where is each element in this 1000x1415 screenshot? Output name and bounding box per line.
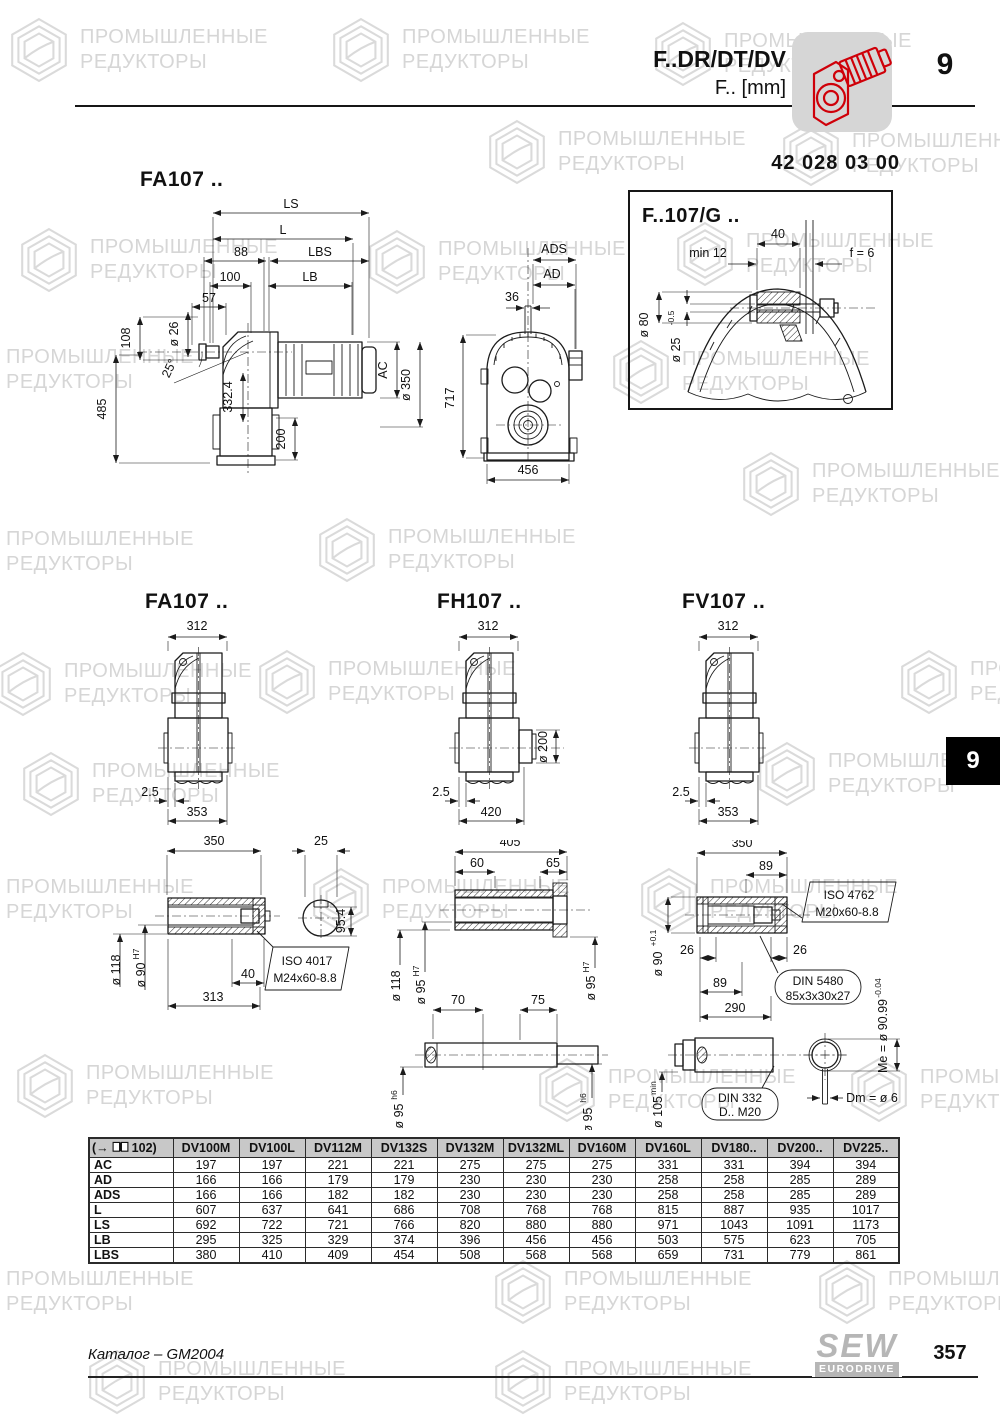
table-cell: 275 xyxy=(437,1158,503,1173)
row-label: ADS xyxy=(89,1188,173,1203)
watermark-text-line: РЕДУКТОРЫ xyxy=(86,1086,274,1111)
dim-88: 88 xyxy=(234,245,248,259)
table-cell: 230 xyxy=(503,1188,569,1203)
dim-ad: AD xyxy=(543,267,560,281)
catalog-page: ПРОМЫШЛЕННЫЕРЕДУКТОРЫ ПРОМЫШЛЕННЫЕРЕДУКТ… xyxy=(0,0,1000,1415)
dim-2-5: 2.5 xyxy=(672,785,689,799)
fv107-small-view-drawing: 312 2.5 353 xyxy=(664,617,784,832)
ref-page: 102) xyxy=(132,1141,157,1155)
table-cell: 1043 xyxy=(701,1218,767,1233)
dim-o90: ø 90 xyxy=(651,951,665,976)
watermark: ПРОМЫШЛЕННЫЕРЕДУКТОРЫ xyxy=(0,518,194,586)
table-row: LBS380410409454508568568659731779861 xyxy=(89,1248,899,1264)
table-cell: 768 xyxy=(503,1203,569,1218)
watermark: ПРОМЫШЛЕННЫЕРЕДУКТОРЫ xyxy=(740,450,1000,518)
dim-o95-right: ø 95 xyxy=(584,975,598,1000)
watermark-hexagon-icon xyxy=(330,16,392,84)
table-cell: 659 xyxy=(635,1248,701,1264)
table-cell: 686 xyxy=(371,1203,437,1218)
table-cell: 258 xyxy=(635,1188,701,1203)
table-cell: 861 xyxy=(833,1248,899,1264)
sew-eurodrive-logo: SEW EURODRIVE xyxy=(812,1330,902,1377)
table-cell: 623 xyxy=(767,1233,833,1248)
table-cell: 329 xyxy=(305,1233,371,1248)
dim-o95-left: ø 95 xyxy=(414,979,428,1004)
table-cell: 275 xyxy=(569,1158,635,1173)
dim-lbs: LBS xyxy=(308,245,332,259)
watermark-text-line: РЕДУКТОРЫ xyxy=(80,50,268,75)
fa107-side-view-drawing: LS L 88 LBS 100 LB 57 108 ø 26 25° 485 3… xyxy=(80,195,440,525)
table-cell: 285 xyxy=(767,1188,833,1203)
table-cell: 503 xyxy=(635,1233,701,1248)
table-cell: 815 xyxy=(635,1203,701,1218)
table-header-cell: DV132ML xyxy=(503,1138,569,1158)
table-header-cell: DV160M xyxy=(569,1138,635,1158)
table-cell: 166 xyxy=(173,1173,239,1188)
watermark-text-line: ПРОМЫШЛЕННЫЕ xyxy=(80,25,268,50)
table-cell: 179 xyxy=(371,1173,437,1188)
watermark-text-line: ПРОМЫШЛЕННЫЕ xyxy=(564,1357,752,1382)
table-cell: 409 xyxy=(305,1248,371,1264)
dim-70: 70 xyxy=(451,993,465,1007)
watermark-text-line: ПРОМЫШЛЕННЫЕ xyxy=(6,527,194,552)
dim-420: 420 xyxy=(481,805,502,819)
watermark: ПРОМЫШЛЕННЫЕРЕДУКТОРЫ xyxy=(492,1258,752,1326)
watermark-hexagon-icon xyxy=(18,226,80,294)
inset-title: F..107/G .. xyxy=(642,205,740,227)
table-ref-cell: (→102) xyxy=(89,1138,173,1158)
dim-o25: ø 25 xyxy=(669,337,683,362)
dim-l: L xyxy=(280,223,287,237)
header-unit: F.. [mm] xyxy=(560,77,786,100)
table-cell: 374 xyxy=(371,1233,437,1248)
table-cell: 692 xyxy=(173,1218,239,1233)
table-row: AD166166179179230230230258258285289 xyxy=(89,1173,899,1188)
fa-hollow-shaft-drawing: 350 25 95.4 ø 118 ø 90 H7 40 313 ISO 401… xyxy=(95,835,375,1030)
table-cell: 331 xyxy=(635,1158,701,1173)
table-cell: 575 xyxy=(701,1233,767,1248)
table-cell: 221 xyxy=(371,1158,437,1173)
dim-me-tolerance: -0.04 xyxy=(873,978,883,998)
drawing-title-fa107: FA107 .. xyxy=(145,590,228,614)
dimension-table: (→102) DV100M DV100L DV112M DV132S DV132… xyxy=(88,1137,900,1264)
table-header-cell: DV225.. xyxy=(833,1138,899,1158)
chapter-side-tab: 9 xyxy=(946,737,1000,785)
catalog-book-icon xyxy=(112,1141,129,1153)
dim-332: 332.4 xyxy=(221,381,235,412)
table-header-cell: DV112M xyxy=(305,1138,371,1158)
watermark-text-line: ПРОМЫШЛЕННЫЕ xyxy=(970,657,1000,682)
dim-485: 485 xyxy=(95,399,109,420)
watermark: ПРОМЫШЛЕННЫЕРЕДУКТОРЫ xyxy=(14,1052,274,1120)
table-cell: 454 xyxy=(371,1248,437,1264)
watermark-text-line: ПРОМЫШЛЕННЫЕ xyxy=(888,1267,1000,1292)
table-cell: 258 xyxy=(701,1173,767,1188)
gearmotor-icon xyxy=(792,32,892,132)
table-cell: 179 xyxy=(305,1173,371,1188)
table-cell: 331 xyxy=(701,1158,767,1173)
dim-405: 405 xyxy=(500,840,521,849)
logo-sew-text: SEW xyxy=(815,1330,899,1362)
dim-36: 36 xyxy=(505,290,519,304)
watermark-hexagon-icon xyxy=(14,1052,76,1120)
row-label: LBS xyxy=(89,1248,173,1264)
dim-o95-left-fit: H7 xyxy=(411,965,421,976)
watermark-text-line: РЕДУКТОРЫ xyxy=(888,1292,1000,1317)
table-cell: 166 xyxy=(239,1173,305,1188)
callout-din5480: DIN 5480 xyxy=(793,974,844,988)
watermark-text-line: РЕДУКТОРЫ xyxy=(564,1292,752,1317)
dim-717: 717 xyxy=(443,388,457,409)
table-cell: 289 xyxy=(833,1188,899,1203)
table-cell: 1091 xyxy=(767,1218,833,1233)
dim-o200: ø 200 xyxy=(536,731,550,763)
f107g-inset-drawing: F..107/G .. 40 min 12 f = 6 ø xyxy=(630,192,891,408)
watermark-hexagon-icon xyxy=(492,1258,554,1326)
dim-312: 312 xyxy=(478,619,499,633)
table-row: L6076376416867087687688158879351017 xyxy=(89,1203,899,1218)
table-cell: 221 xyxy=(305,1158,371,1173)
watermark-text-line: РЕДУКТОРЫ xyxy=(970,682,1000,707)
dim-350: 350 xyxy=(732,840,753,850)
dim-312: 312 xyxy=(187,619,208,633)
table-cell: 508 xyxy=(437,1248,503,1264)
table-cell: 637 xyxy=(239,1203,305,1218)
table-cell: 641 xyxy=(305,1203,371,1218)
table-cell: 258 xyxy=(635,1173,701,1188)
watermark-hexagon-icon xyxy=(898,648,960,716)
watermark-hexagon-icon xyxy=(316,516,378,584)
watermark-hexagon-icon xyxy=(486,118,548,186)
watermark-hexagon-icon xyxy=(816,1258,878,1326)
dim-40: 40 xyxy=(241,967,255,981)
table-cell: 779 xyxy=(767,1248,833,1264)
watermark-text-line: ПРОМЫШЛЕННЫЕ xyxy=(6,1267,194,1292)
dim-ls: LS xyxy=(283,197,298,211)
table-cell: 731 xyxy=(701,1248,767,1264)
table-row: ADS166166182182230230230258258285289 xyxy=(89,1188,899,1203)
table-header-cell: DV132M xyxy=(437,1138,503,1158)
table-header-cell: DV100M xyxy=(173,1138,239,1158)
watermark-text-line: РЕДУКТОРЫ xyxy=(388,550,576,575)
table-cell: 935 xyxy=(767,1203,833,1218)
watermark-text-line: ПРОМЫШЛЕННЫЕ xyxy=(564,1267,752,1292)
table-row: LB295325329374396456456503575623705 xyxy=(89,1233,899,1248)
watermark-text-line: РЕДУКТОРЫ xyxy=(6,552,194,577)
dim-o80: ø 80 xyxy=(637,312,651,337)
table-row: AC197197221221275275275331331394394 xyxy=(89,1158,899,1173)
fh107-small-view-drawing: 312 ø 200 2.5 420 xyxy=(424,617,584,832)
fh-shaft-drawing: 405 60 65 ø 118 ø 95 H7 ø 95 H7 70 75 ø … xyxy=(390,840,660,1130)
table-cell: 380 xyxy=(173,1248,239,1264)
table-header-cell: DV160L xyxy=(635,1138,701,1158)
watermark-hexagon-icon xyxy=(492,1348,554,1415)
dim-290: 290 xyxy=(725,1001,746,1015)
table-cell: 325 xyxy=(239,1233,305,1248)
dim-65: 65 xyxy=(546,856,560,870)
table-cell: 768 xyxy=(569,1203,635,1218)
table-cell: 880 xyxy=(503,1218,569,1233)
table-cell: 197 xyxy=(173,1158,239,1173)
table-cell: 705 xyxy=(833,1233,899,1248)
chapter-number: 9 xyxy=(920,48,970,82)
callout-m24: M24x60-8.8 xyxy=(273,971,337,985)
fa107-small-view-drawing: 312 2.5 353 xyxy=(133,617,253,832)
dim-60: 60 xyxy=(470,856,484,870)
watermark-text-line: РЕДУКТОРЫ xyxy=(564,1382,752,1407)
dim-o118: ø 118 xyxy=(390,970,403,1001)
dim-o350: ø 350 xyxy=(399,369,413,401)
table-cell: 230 xyxy=(437,1173,503,1188)
callout-iso4762: ISO 4762 xyxy=(824,888,875,902)
callout-d-m20: D.. M20 xyxy=(719,1105,761,1119)
table-cell: 971 xyxy=(635,1218,701,1233)
dim-lb: LB xyxy=(302,270,317,284)
dim-min12: min 12 xyxy=(689,246,727,260)
dim-312: 312 xyxy=(718,619,739,633)
watermark-text-line: РЕДУКТОРЫ xyxy=(6,1292,194,1317)
dim-108: 108 xyxy=(119,328,133,349)
watermark: ПРОМЫШЛЕННЫЕРЕДУКТОРЫ xyxy=(898,648,1000,716)
dim-dm: Dm = ø 6 xyxy=(846,1091,898,1105)
footer-catalog-name: Каталог – GM2004 xyxy=(88,1346,224,1363)
table-header-cell: DV132S xyxy=(371,1138,437,1158)
table-header-cell: DV100L xyxy=(239,1138,305,1158)
dim-o95-bottom-left-fit: h6 xyxy=(390,1090,399,1100)
dim-o105-min: min xyxy=(650,1081,658,1095)
drawing-title-fa107-main: FA107 .. xyxy=(140,168,223,192)
dim-ac: AC xyxy=(376,361,390,378)
watermark-hexagon-icon xyxy=(256,648,318,716)
logo-eurodrive-text: EURODRIVE xyxy=(815,1362,899,1377)
watermark: ПРОМЫШЛЕННЫЕРЕДУКТОРЫ xyxy=(0,1258,194,1326)
dim-o95-bottom-right: ø 95 xyxy=(581,1107,595,1130)
dim-o90: ø 90 xyxy=(134,962,148,987)
table-cell: 1017 xyxy=(833,1203,899,1218)
dim-57: 57 xyxy=(202,291,216,305)
row-label: AC xyxy=(89,1158,173,1173)
dim-350: 350 xyxy=(204,835,225,848)
table-cell: 258 xyxy=(701,1188,767,1203)
header-model: F..DR/DT/DV xyxy=(560,46,786,73)
watermark-text-line: ПРОМЫШЛЕННЫЕ xyxy=(86,1061,274,1086)
table-cell: 456 xyxy=(569,1233,635,1248)
dim-o25-tolerance: -0.5 xyxy=(666,310,676,325)
table-cell: 275 xyxy=(503,1158,569,1173)
watermark: ПРОМЫШЛЕННЫЕРЕДУКТОРЫ xyxy=(8,16,268,84)
row-label: LS xyxy=(89,1218,173,1233)
dim-f6: f = 6 xyxy=(850,246,875,260)
table-header-cell: DV200.. xyxy=(767,1138,833,1158)
table-cell: 766 xyxy=(371,1218,437,1233)
table-cell: 410 xyxy=(239,1248,305,1264)
dim-o90-tolerance: +0.1 xyxy=(650,929,658,946)
header-icon-box xyxy=(792,32,892,132)
watermark-hexagon-icon xyxy=(20,750,82,818)
watermark-text-line: ПРОМЫШЛЕННЫЕ xyxy=(558,127,746,152)
table-cell: 289 xyxy=(833,1173,899,1188)
dim-26-right: 26 xyxy=(793,943,807,957)
table-cell: 166 xyxy=(173,1188,239,1203)
dim-o90-fit: H7 xyxy=(131,948,141,959)
header: F..DR/DT/DV F.. [mm] xyxy=(560,46,786,100)
dim-313: 313 xyxy=(203,990,224,1004)
dim-o95-right-fit: H7 xyxy=(581,961,591,972)
watermark-text-line: ПРОМЫШЛЕННЫЕ xyxy=(852,129,1000,154)
table-cell: 820 xyxy=(437,1218,503,1233)
watermark-text-line: ПРОМЫШЛЕННЫЕ xyxy=(388,525,576,550)
dim-353: 353 xyxy=(187,805,208,819)
watermark-text-line: РЕДУКТОРЫ xyxy=(812,484,1000,509)
dim-o105: ø 105 xyxy=(651,1096,665,1128)
table-cell: 230 xyxy=(569,1173,635,1188)
watermark: ПРОМЫШЛЕННЫЕРЕДУКТОРЫ xyxy=(330,16,590,84)
dim-o26: ø 26 xyxy=(167,321,181,346)
table-cell: 722 xyxy=(239,1218,305,1233)
dim-100: 100 xyxy=(220,270,241,284)
watermark-hexagon-icon xyxy=(740,450,802,518)
table-cell: 396 xyxy=(437,1233,503,1248)
table-cell: 880 xyxy=(569,1218,635,1233)
dim-25: 25 xyxy=(314,835,328,848)
table-cell: 182 xyxy=(305,1188,371,1203)
dim-26-left: 26 xyxy=(680,943,694,957)
watermark: ПРОМЫШЛЕННЫЕРЕДУКТОРЫ xyxy=(316,516,576,584)
table-header-row: (→102) DV100M DV100L DV112M DV132S DV132… xyxy=(89,1138,899,1158)
page-number: 357 xyxy=(922,1342,978,1365)
table-cell: 394 xyxy=(767,1158,833,1173)
watermark-text-line: РЕДУКТОРЫ xyxy=(158,1382,346,1407)
table-header-cell: DV180.. xyxy=(701,1138,767,1158)
dim-o95-bottom-left: ø 95 xyxy=(392,1103,406,1128)
dim-40: 40 xyxy=(771,227,785,241)
dim-75: 75 xyxy=(531,993,545,1007)
dim-89-top: 89 xyxy=(759,859,773,873)
callout-din332: DIN 332 xyxy=(718,1091,762,1105)
fa107-front-view-drawing: ADS AD 36 717 456 xyxy=(440,228,640,518)
table-cell: 708 xyxy=(437,1203,503,1218)
dim-ads: ADS xyxy=(541,242,567,256)
table-cell: 394 xyxy=(833,1158,899,1173)
dim-o95-bottom-right-fit: h6 xyxy=(578,1093,588,1103)
dim-me: Me = ø 90.99 xyxy=(876,999,890,1073)
row-label: L xyxy=(89,1203,173,1218)
dim-456: 456 xyxy=(518,463,539,477)
table-cell: 568 xyxy=(503,1248,569,1264)
dim-95-4: 95.4 xyxy=(334,909,348,933)
dim-200: 200 xyxy=(274,429,288,450)
table-cell: 182 xyxy=(371,1188,437,1203)
callout-iso4017: ISO 4017 xyxy=(282,954,333,968)
inset-box: F..107/G .. 40 min 12 f = 6 ø xyxy=(628,190,893,410)
dim-2-5: 2.5 xyxy=(432,785,449,799)
table-cell: 721 xyxy=(305,1218,371,1233)
dim-353: 353 xyxy=(718,805,739,819)
table-cell: 1173 xyxy=(833,1218,899,1233)
fv-splined-shaft-drawing: 350 89 ISO 4762 M20x60-8.8 26 26 89 290 … xyxy=(650,840,995,1140)
table-cell: 456 xyxy=(503,1233,569,1248)
drawing-title-fv107: FV107 .. xyxy=(682,590,765,614)
table-cell: 230 xyxy=(503,1173,569,1188)
table-cell: 230 xyxy=(437,1188,503,1203)
table-cell: 230 xyxy=(569,1188,635,1203)
row-label: AD xyxy=(89,1173,173,1188)
watermark: ПРОМЫШЛЕННЫЕРЕДУКТОРЫ xyxy=(816,1258,1000,1326)
dim-89-bottom: 89 xyxy=(713,976,727,990)
table-cell: 295 xyxy=(173,1233,239,1248)
dim-2-5: 2.5 xyxy=(141,785,158,799)
watermark-hexagon-icon xyxy=(8,16,70,84)
table-cell: 887 xyxy=(701,1203,767,1218)
table-cell: 285 xyxy=(767,1173,833,1188)
drawing-title-fh107: FH107 .. xyxy=(437,590,522,614)
table-cell: 607 xyxy=(173,1203,239,1218)
ref-arrow: (→ xyxy=(92,1141,109,1155)
watermark-text-line: ПРОМЫШЛЕННЫЕ xyxy=(812,459,1000,484)
row-label: LB xyxy=(89,1233,173,1248)
table-row: LS692722721766820880880971104310911173 xyxy=(89,1218,899,1233)
callout-85x3: 85x3x30x27 xyxy=(786,989,851,1003)
table-cell: 166 xyxy=(239,1188,305,1203)
callout-m20: M20x60-8.8 xyxy=(815,905,879,919)
watermark-hexagon-icon xyxy=(0,650,54,718)
watermark: ПРОМЫШЛЕННЫЕРЕДУКТОРЫ xyxy=(492,1348,752,1415)
table-cell: 197 xyxy=(239,1158,305,1173)
table-cell: 568 xyxy=(569,1248,635,1264)
part-number: 42 028 03 00 xyxy=(700,152,900,175)
dim-o118: ø 118 xyxy=(109,954,123,985)
